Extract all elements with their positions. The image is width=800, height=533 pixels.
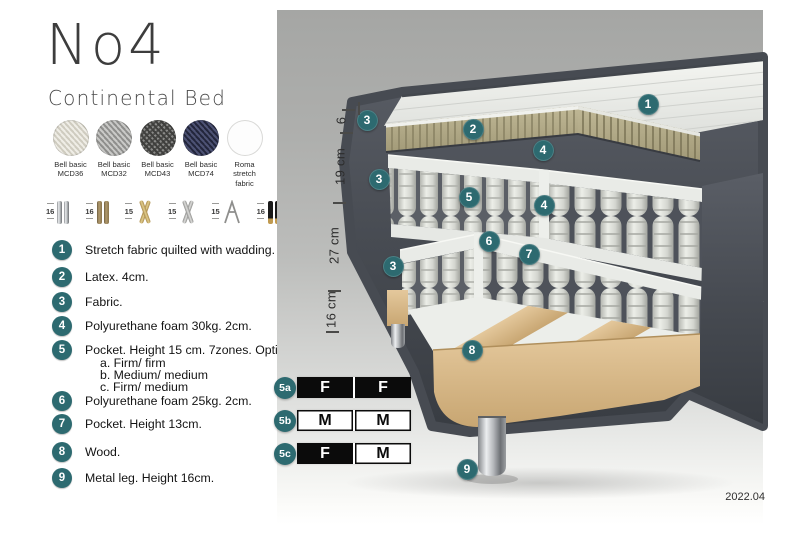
feature-text: Fabric. [85,292,123,309]
feature-text: Stretch fabric quilted with wadding. [85,240,275,257]
page: { "header": { "title": "No4", "subtitle"… [0,0,800,533]
feature-text: Metal leg. Height 16cm. [85,468,214,485]
fabric-swatch[interactable]: Bell basicMCD36 [50,120,91,188]
dimension-label: 19 cm [333,137,348,197]
feature-number-badge: 4 [52,316,72,336]
leg-height: 16 [257,201,265,222]
feature-number-badge: 5 [52,340,72,360]
callout-2: 2 [463,119,484,140]
dimension-label: 16 cm [324,280,339,340]
feature-number-badge: 7 [52,414,72,434]
leg-height: 16 [46,201,54,222]
leg-height: 15 [125,201,133,222]
fabric-swatch-row: Bell basicMCD36 Bell basicMCD32 Bell bas… [50,120,265,188]
callout-6: 6 [479,231,500,252]
feature-text: Pocket. Height 13cm. [85,414,202,431]
leg-option-cyl-bronze[interactable]: 16 [85,188,108,234]
fabric-swatch-label: Bell basicMCD36 [54,160,87,179]
firmness-cell: F [297,377,353,398]
feature-item: 6 Polyurethane foam 25kg. 2cm. [52,391,282,411]
feature-item: 9 Metal leg. Height 16cm. [52,468,282,488]
callout-3: 3 [369,169,390,190]
page-subtitle: Continental Bed [48,86,226,110]
leg-icon [57,198,69,224]
fabric-swatch-circle[interactable] [53,120,89,156]
fabric-swatch-circle[interactable] [140,120,176,156]
feature-number-badge: 8 [52,442,72,462]
firmness-badge-5a: 5a [274,377,296,399]
dimension-label: 27 cm [327,216,342,276]
fabric-swatch-label: Bell basicMCD74 [185,160,218,179]
leg-options-row: 16 16 15 15 15 16 [46,188,280,234]
feature-text: Wood. [85,442,120,459]
leg-option-cross-gold[interactable]: 15 [125,188,152,234]
leg-option-hairpin[interactable]: 15 [211,188,240,234]
firmness-cell: M [355,410,411,431]
feature-item: 7 Pocket. Height 13cm. [52,414,282,434]
callout-9: 9 [457,459,478,480]
ruler-extension [358,102,360,115]
fabric-swatch-label: Bell basicMCD43 [141,160,174,179]
feature-item: 1 Stretch fabric quilted with wadding. [52,240,282,260]
leg-icon [223,198,241,224]
fabric-swatch[interactable]: Romastretch fabric [224,120,265,188]
fabric-swatch[interactable]: Bell basicMCD43 [137,120,178,188]
fabric-swatch-circle[interactable] [96,120,132,156]
firmness-badge-5b: 5b [274,410,296,432]
firmness-badge-5c: 5c [274,443,296,465]
ruler-tick [333,202,346,204]
fabric-swatch-label: Romastretch fabric [224,160,265,188]
firmness-bar-5a: FF [297,377,411,398]
callout-1: 1 [638,94,659,115]
leg-height: 15 [168,201,176,222]
leg-icon [179,198,195,224]
fabric-swatch[interactable]: Bell basicMCD74 [181,120,222,188]
firmness-bar-5c: FM [297,443,411,464]
feature-number-badge: 1 [52,240,72,260]
version-label: 2022.04 [695,491,765,503]
callout-7: 7 [519,244,540,265]
feature-item: 8 Wood. [52,442,282,462]
feature-item: 4 Polyurethane foam 30kg. 2cm. [52,316,282,336]
firmness-cell: M [297,410,353,431]
feature-item: 3 Fabric. [52,292,282,312]
fabric-swatch[interactable]: Bell basicMCD32 [94,120,135,188]
feature-number-badge: 6 [52,391,72,411]
leg-icon [136,198,152,224]
feature-number-badge: 2 [52,267,72,287]
feature-text: Pocket. Height 15 cm. 7zones. Option: [85,340,295,357]
fabric-swatch-circle[interactable] [183,120,219,156]
callout-8: 8 [462,340,483,361]
feature-number-badge: 9 [52,468,72,488]
firmness-bar-5b: MM [297,410,411,431]
leg-height: 16 [85,201,93,222]
leg-option-cyl-chrome[interactable]: 16 [46,188,69,234]
callout-3: 3 [383,256,404,277]
feature-text: Latex. 4cm. [85,267,149,284]
feature-number-badge: 3 [52,292,72,312]
leg-option-cross-silver[interactable]: 15 [168,188,195,234]
fabric-swatch-circle[interactable] [227,120,263,156]
page-title: No4 [46,18,167,74]
callout-5: 5 [459,187,480,208]
firmness-cell: F [355,377,411,398]
firmness-cell: F [297,443,353,464]
fabric-swatch-label: Bell basicMCD32 [98,160,131,179]
leg-icon [97,198,109,224]
feature-item: 5 Pocket. Height 15 cm. 7zones. Option: [52,340,282,360]
leg-height: 15 [211,201,219,222]
callout-4: 4 [534,195,555,216]
feature-text: Polyurethane foam 30kg. 2cm. [85,316,252,333]
firmness-cell: M [355,443,411,464]
callout-4: 4 [533,140,554,161]
feature-text: Polyurethane foam 25kg. 2cm. [85,391,252,408]
feature-item: 2 Latex. 4cm. [52,267,282,287]
